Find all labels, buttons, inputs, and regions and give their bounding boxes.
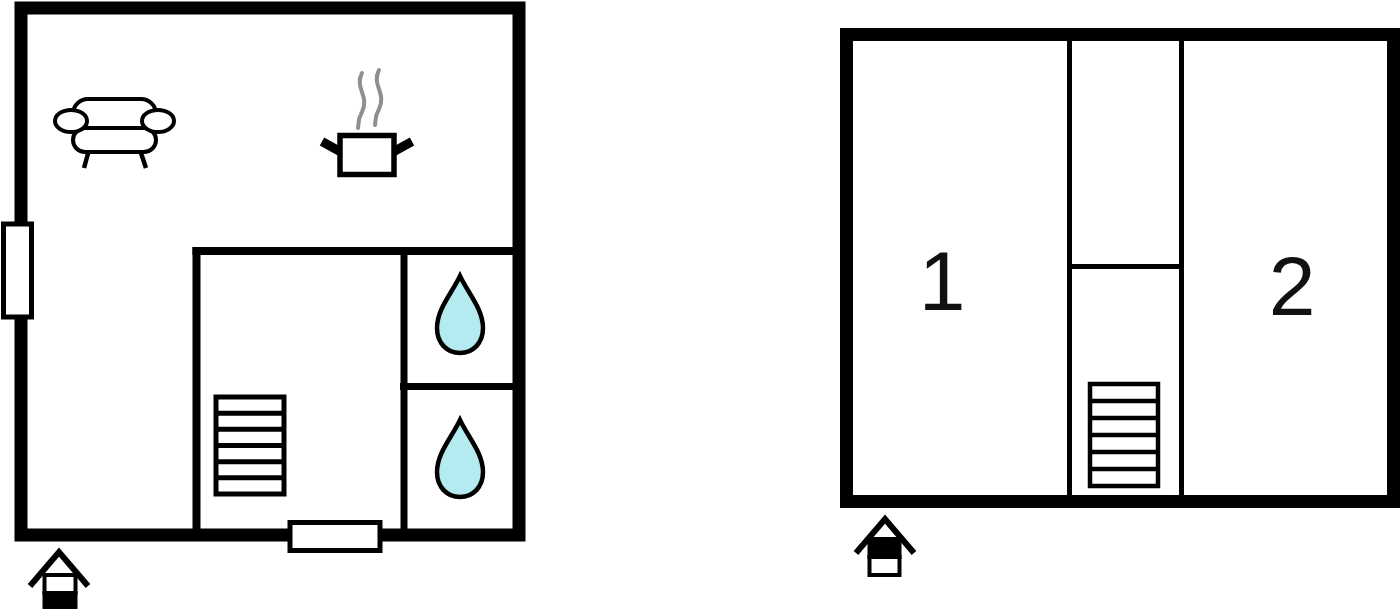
stairs-icon bbox=[216, 397, 284, 494]
floor-plan-drawing: 1 2 bbox=[0, 0, 1400, 609]
sofa-armrest-right bbox=[142, 110, 174, 132]
door-marker bbox=[290, 523, 380, 551]
house-band-white bbox=[45, 575, 76, 593]
house-band-black bbox=[45, 593, 76, 609]
house-orientation-icon bbox=[30, 552, 88, 609]
upper-floor-plan: 1 2 bbox=[847, 35, 1394, 502]
house-orientation-icon bbox=[856, 519, 914, 575]
house-band-white bbox=[870, 557, 900, 575]
house-band-black bbox=[870, 539, 900, 557]
window-marker bbox=[4, 224, 32, 317]
floor-plan-canvas: 1 2 bbox=[0, 0, 1400, 609]
room-1-label: 1 bbox=[919, 234, 966, 328]
room-2-label: 2 bbox=[1269, 239, 1316, 333]
sofa-armrest-left bbox=[55, 110, 87, 132]
ground-floor-plan bbox=[4, 8, 520, 551]
sofa-seat bbox=[73, 128, 156, 152]
stairs-icon bbox=[1090, 384, 1158, 486]
pot-body bbox=[340, 136, 394, 175]
